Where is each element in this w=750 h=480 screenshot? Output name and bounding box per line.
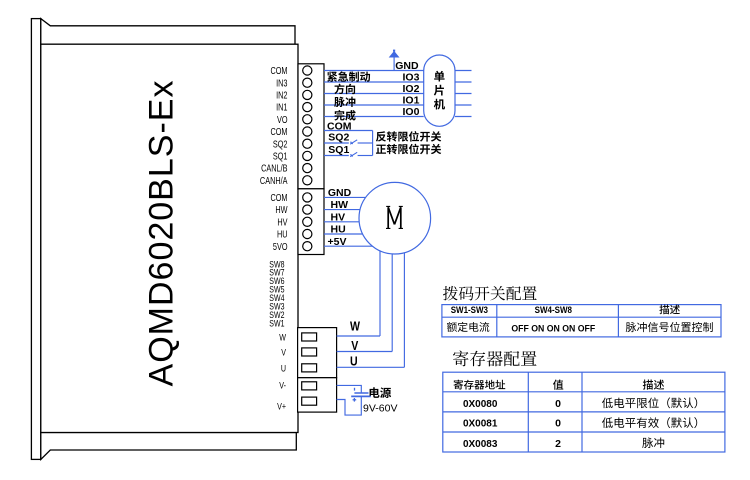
svg-text:U: U [350,355,358,369]
svg-text:W: W [350,320,361,334]
svg-text:W: W [279,331,286,342]
svg-text:V: V [281,346,286,357]
svg-text:IN3: IN3 [276,77,287,88]
svg-text:IO3: IO3 [403,72,420,84]
svg-text:GND: GND [328,187,352,199]
svg-text:5VO: 5VO [273,241,288,252]
svg-text:HV: HV [331,211,346,223]
svg-text:SW1: SW1 [269,319,285,329]
svg-text:0X0080: 0X0080 [463,399,498,410]
svg-text:HW: HW [331,199,349,211]
svg-text:IN2: IN2 [276,89,287,100]
svg-text:0X0081: 0X0081 [463,419,498,430]
svg-text:IO1: IO1 [403,95,420,107]
svg-text:COM: COM [270,126,287,137]
svg-text:SQ2: SQ2 [328,131,349,143]
svg-text:U: U [281,362,286,373]
svg-text:IO2: IO2 [403,83,420,95]
svg-text:SQ1: SQ1 [328,144,349,156]
svg-text:V-: V- [279,379,286,390]
svg-text:SQ2: SQ2 [273,138,288,149]
svg-text:COM: COM [270,65,287,76]
svg-text:SW1-SW3: SW1-SW3 [451,305,489,316]
svg-text:HV: HV [277,216,287,227]
svg-text:V+: V+ [277,400,286,411]
svg-text:CANL/B: CANL/B [261,163,287,174]
svg-text:0X0083: 0X0083 [463,439,498,450]
svg-text:IO0: IO0 [403,106,420,118]
svg-text:0: 0 [555,398,561,410]
svg-text:HW: HW [275,204,288,215]
svg-text:+5V: +5V [328,236,347,248]
svg-text:V: V [351,339,358,353]
svg-text:HU: HU [331,224,346,236]
svg-text:SW4-SW8: SW4-SW8 [535,305,573,316]
svg-text:VO: VO [277,114,288,125]
svg-text:0: 0 [555,418,561,430]
svg-text:CANH/A: CANH/A [260,175,288,186]
svg-text:GND: GND [395,60,419,72]
svg-text:SQ1: SQ1 [273,150,288,161]
svg-text:HU: HU [277,228,288,239]
svg-text:9V-60V: 9V-60V [363,403,397,415]
svg-text:AQMD6020BLS-Ex: AQMD6020BLS-Ex [143,80,181,387]
svg-text:IN1: IN1 [276,102,287,113]
svg-text:OFF ON ON ON OFF: OFF ON ON ON OFF [511,323,595,333]
svg-text:2: 2 [555,438,561,450]
svg-text:COM: COM [270,192,287,203]
